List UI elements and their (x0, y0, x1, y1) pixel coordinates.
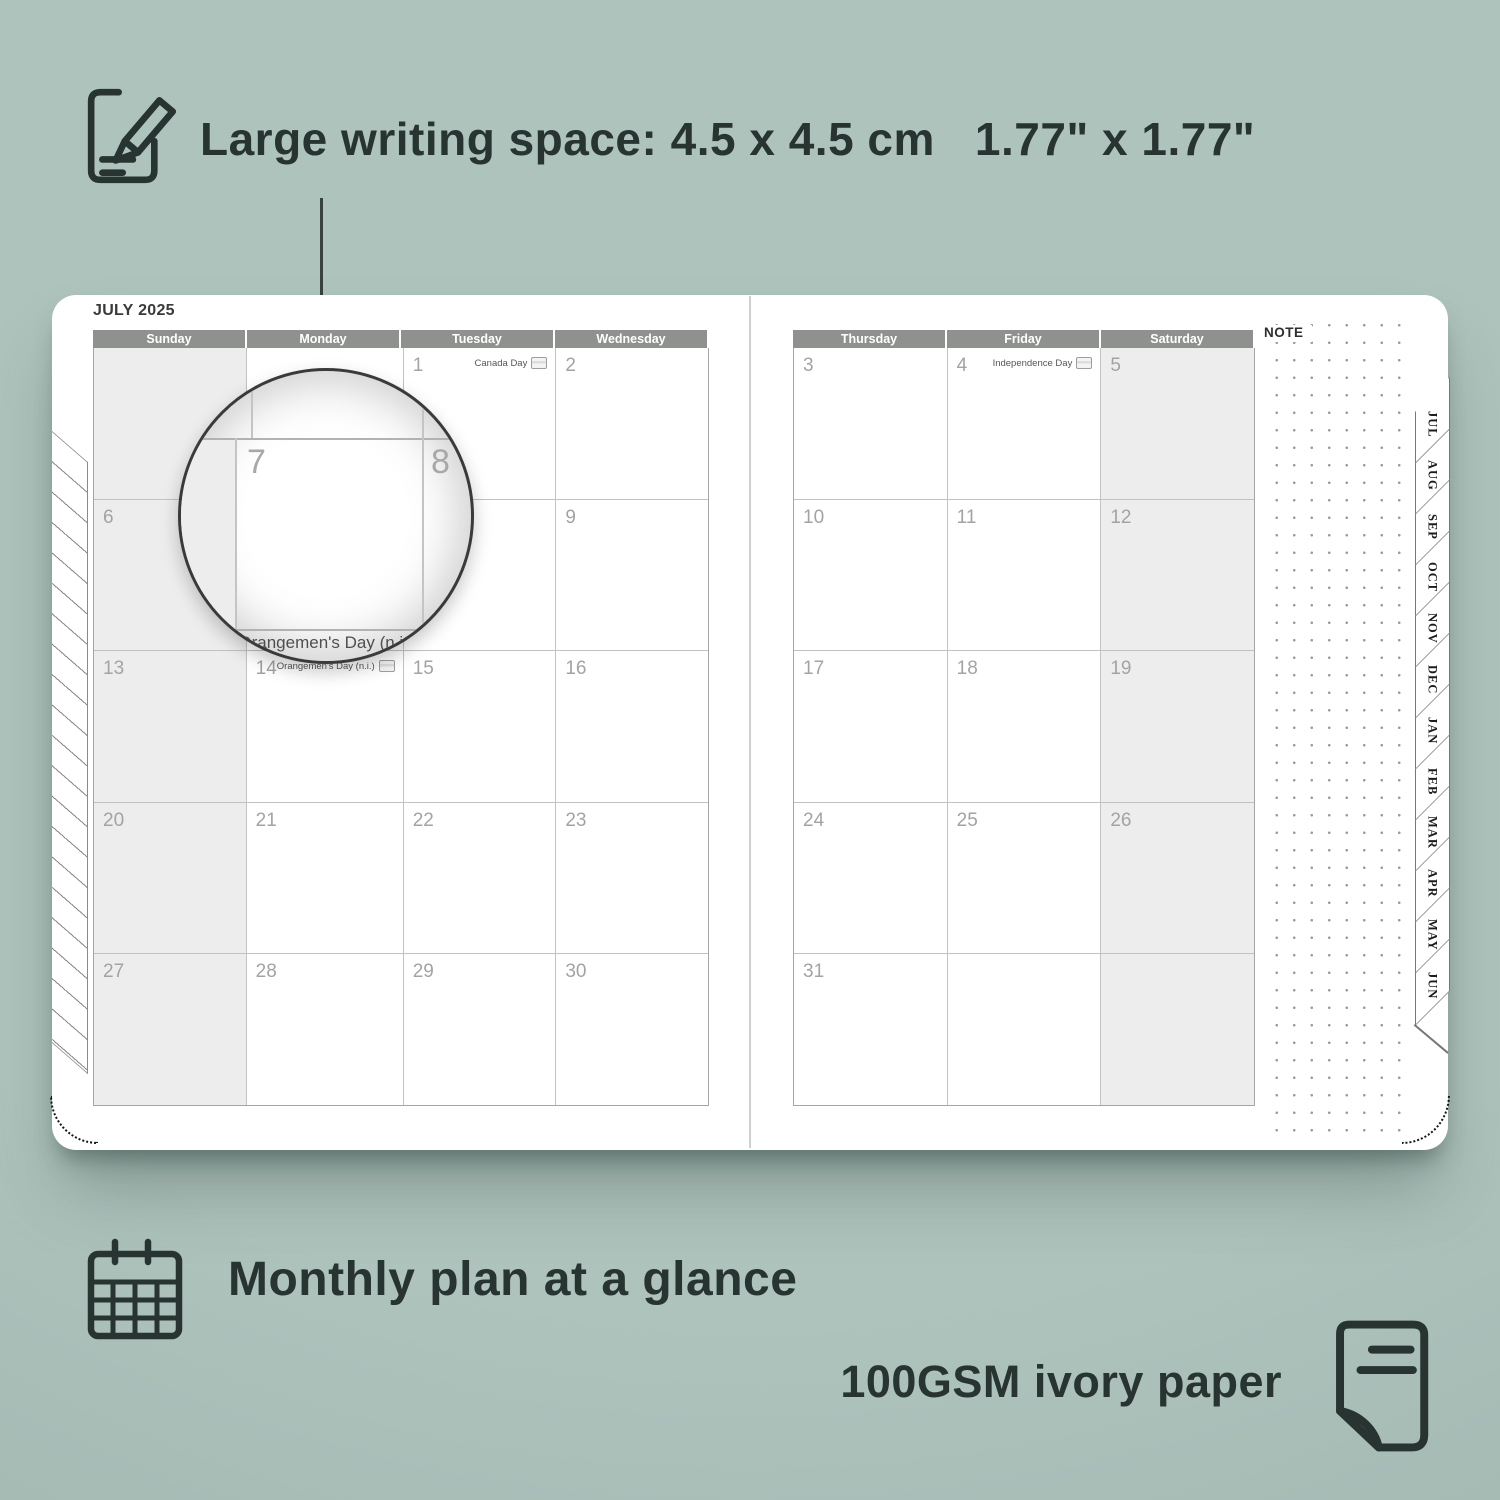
weekday-label: Sunday (93, 330, 245, 348)
paper-sheet-icon (1318, 1320, 1444, 1452)
calendar-cell: 2 (556, 348, 708, 499)
day-number: 21 (256, 810, 277, 832)
weekday-label: Monday (247, 330, 399, 348)
magnified-sunday-shade (181, 438, 235, 629)
magnified-grid-line (251, 371, 253, 438)
day-number: 3 (803, 355, 814, 377)
day-number: 4 (957, 355, 968, 377)
day-number: 6 (103, 507, 114, 529)
calendar-cell: 27 (94, 954, 246, 1105)
magnified-grid-line (235, 438, 237, 629)
calendar-cell: 5 (1101, 348, 1254, 499)
writing-space-metric: Large writing space: 4.5 x 4.5 cm (200, 113, 935, 165)
day-number: 28 (256, 961, 277, 983)
magnified-grid-line (422, 371, 424, 629)
day-number: 23 (565, 810, 586, 832)
day-number: 29 (413, 961, 434, 983)
day-number: 31 (803, 961, 824, 983)
calendar-cell: 16 (556, 651, 708, 802)
calendar-cell: 24 (794, 803, 947, 954)
weekday-label: Saturday (1101, 330, 1253, 348)
day-number: 15 (413, 658, 434, 680)
weekday-label: Tuesday (401, 330, 553, 348)
holiday-label: Independence Day (993, 357, 1093, 369)
magnified-holiday-label: Orangemen's Day (n.i.) (206, 633, 446, 653)
day-number: 10 (803, 507, 824, 529)
day-number: 27 (103, 961, 124, 983)
calendar-cell: 30 (556, 954, 708, 1105)
writing-space-imperial: 1.77" x 1.77" (975, 112, 1255, 166)
calendar-cell: 3 (794, 348, 947, 499)
calendar-icon (85, 1238, 185, 1342)
day-number: 30 (565, 961, 586, 983)
weekday-label: Friday (947, 330, 1099, 348)
weekday-header-right: ThursdayFridaySaturday (793, 330, 1253, 348)
day-number: 22 (413, 810, 434, 832)
calendar-cell: 17 (794, 651, 947, 802)
holiday-label: Canada Day (475, 357, 548, 369)
day-number: 14 (256, 658, 277, 680)
flag-icon (1076, 357, 1092, 369)
calendar-cell: 26 (1101, 803, 1254, 954)
paper-caption: 100GSM ivory paper (0, 1356, 1282, 1408)
magnified-grid-line (181, 629, 471, 631)
calendar-cell: 29 (404, 954, 556, 1105)
monthly-plan-caption: Monthly plan at a glance (228, 1252, 797, 1307)
flag-icon (531, 357, 547, 369)
magnifier-circle: 7 8 Orangemen's Day (n.i.) (178, 368, 474, 664)
weekday-label: Thursday (793, 330, 945, 348)
calendar-cell: 14Orangemen's Day (n.i.) (247, 651, 403, 802)
day-number: 25 (957, 810, 978, 832)
flag-icon (379, 660, 395, 672)
writing-space-caption: Large writing space: 4.5 x 4.5 cm1.77" x… (200, 112, 1255, 166)
calendar-cell: 15 (404, 651, 556, 802)
calendar-cell: 25 (948, 803, 1101, 954)
magnified-day-7: 7 (247, 443, 266, 482)
pencil-note-icon (86, 80, 188, 188)
day-number: 20 (103, 810, 124, 832)
calendar-cell: 4Independence Day (948, 348, 1101, 499)
calendar-cell (948, 954, 1101, 1105)
calendar-cell: 28 (247, 954, 403, 1105)
calendar-cell: 22 (404, 803, 556, 954)
day-number: 18 (957, 658, 978, 680)
calendar-cell: 10 (794, 500, 947, 651)
weekday-header-left: SundayMondayTuesdayWednesday (93, 330, 707, 348)
calendar-cell: 23 (556, 803, 708, 954)
calendar-cell: 21 (247, 803, 403, 954)
note-dot-grid (1262, 324, 1404, 1142)
calendar-cell: 20 (94, 803, 246, 954)
calendar-grid-right: 34Independence Day510111217181924252631 (793, 348, 1255, 1106)
calendar-cell: 9 (556, 500, 708, 651)
note-label: NOTE (1264, 325, 1312, 342)
magnified-writing-space: 7 8 Orangemen's Day (n.i.) (181, 371, 471, 661)
weekday-label: Wednesday (555, 330, 707, 348)
calendar-cell: 19 (1101, 651, 1254, 802)
magnified-day-8: 8 (431, 443, 450, 482)
calendar-cell: 12 (1101, 500, 1254, 651)
month-title: JULY 2025 (93, 302, 175, 320)
calendar-cell (1101, 954, 1254, 1105)
calendar-cell: 13 (94, 651, 246, 802)
day-number: 24 (803, 810, 824, 832)
product-infographic: Large writing space: 4.5 x 4.5 cm1.77" x… (0, 0, 1500, 1500)
day-number: 11 (957, 507, 977, 529)
day-number: 5 (1110, 355, 1121, 377)
day-number: 9 (565, 507, 576, 529)
calendar-cell: 11 (948, 500, 1101, 651)
day-number: 2 (565, 355, 576, 377)
calendar-cell: 31 (794, 954, 947, 1105)
day-number: 12 (1110, 507, 1131, 529)
day-number: 17 (803, 658, 824, 680)
page-edge-hatching (52, 431, 88, 1074)
page-spine (749, 296, 751, 1148)
month-tab-label: JUN (1419, 960, 1445, 1011)
day-number: 19 (1110, 658, 1131, 680)
day-number: 26 (1110, 810, 1131, 832)
day-number: 16 (565, 658, 586, 680)
magnified-grid-line (181, 438, 471, 440)
calendar-cell: 18 (948, 651, 1101, 802)
day-number: 13 (103, 658, 124, 680)
